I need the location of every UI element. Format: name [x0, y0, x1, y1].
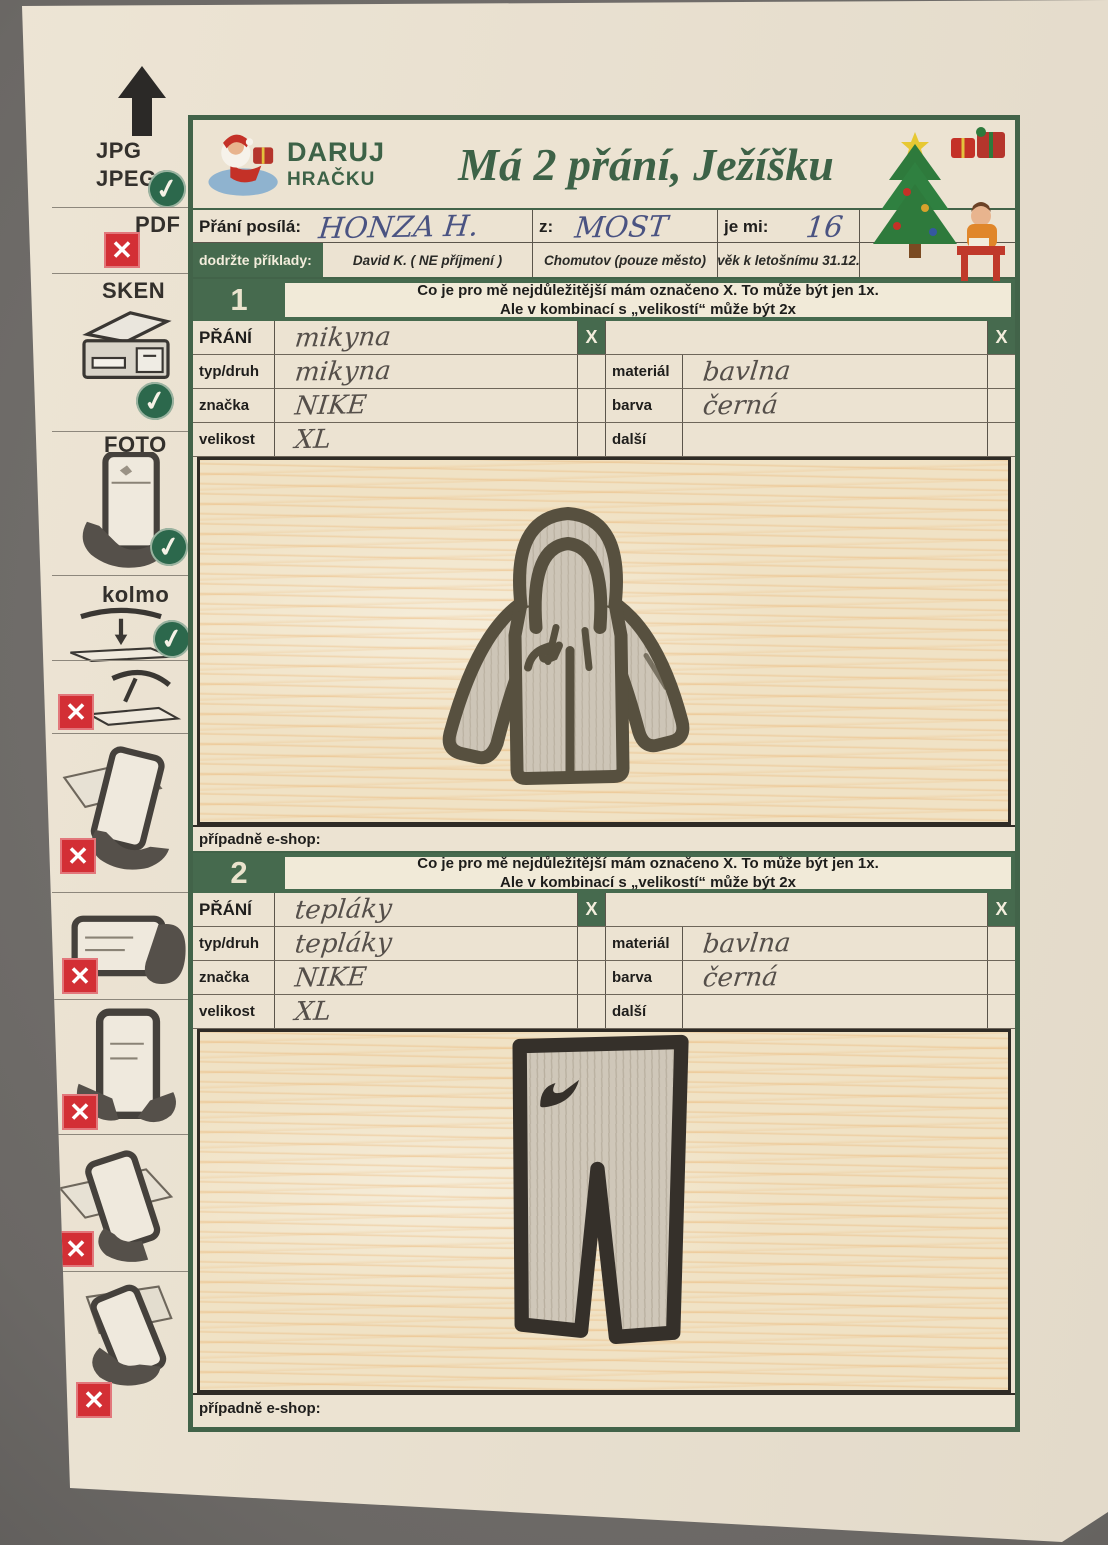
x-checkbox-cell — [578, 927, 606, 960]
other-label: další — [606, 1003, 646, 1020]
type-value: tepláky — [273, 927, 393, 959]
x-column-header: X — [988, 321, 1015, 354]
x-checkbox-cell — [988, 389, 1015, 422]
divider — [52, 575, 190, 576]
brand-value: NIKE — [273, 390, 368, 422]
brand-label: značka — [193, 397, 249, 414]
city-value: MOST — [559, 209, 669, 245]
photo-background: JPG JPEG ✓ PDF ✕ SKEN ✓ FOTO — [0, 0, 1108, 1545]
x-checkbox-cell — [988, 961, 1015, 994]
x-checkbox-cell — [578, 961, 606, 994]
type-value: mikyna — [273, 355, 392, 387]
from-label: z: — [533, 217, 553, 237]
rejected-x-icon: ✕ — [58, 1231, 94, 1267]
logo-line-2: HRAČKU — [287, 170, 397, 189]
arrow-up-icon — [118, 66, 166, 136]
color-value: černá — [681, 390, 779, 422]
x-checkbox-cell — [988, 423, 1015, 456]
eshop-row: případně e-shop: — [193, 825, 1015, 853]
x-column-header: X — [988, 893, 1015, 926]
divider — [52, 892, 190, 893]
table-row: typ/druh mikyna materiál bavlna — [193, 355, 1015, 389]
instructions-line-1: Co je pro mě nejdůležitější mám označeno… — [417, 854, 879, 874]
x-column-header: X — [578, 893, 606, 926]
wish-label: PŘÁNÍ — [193, 328, 252, 348]
phone-above-paper-angled-icon — [68, 1282, 186, 1388]
rejected-x-icon: ✕ — [62, 1094, 98, 1130]
drawing-area-sweatpants — [197, 1029, 1011, 1393]
table-row: typ/druh tepláky materiál bavlna — [193, 927, 1015, 961]
sender-label: Přání posílá: — [193, 217, 301, 237]
eshop-label: případně e-shop: — [193, 831, 321, 848]
daruj-hracku-logo: DARUJ HRAČKU — [287, 139, 397, 189]
x-column-header: X — [578, 321, 606, 354]
material-value: bavlna — [681, 928, 792, 960]
section-2-header: 2 Co je pro mě nejdůležitější mám označe… — [193, 853, 1015, 893]
other-label: další — [606, 431, 646, 448]
rejected-x-icon: ✕ — [58, 694, 94, 730]
instructions-line-2: Ale v kombinací s „velikostí“ může být 2… — [500, 300, 796, 320]
brand-label: značka — [193, 969, 249, 986]
examples-label: dodržte příklady: — [193, 243, 323, 277]
wish-label: PŘÁNÍ — [193, 900, 252, 920]
sweatpants-sketch — [491, 1029, 706, 1363]
paper-sheet: JPG JPEG ✓ PDF ✕ SKEN ✓ FOTO — [0, 0, 1108, 1545]
hoodie-sketch — [418, 468, 718, 818]
divider — [52, 660, 190, 661]
wish-value: tepláky — [273, 893, 393, 925]
x-checkbox-cell — [578, 389, 606, 422]
drawing-area-hoodie — [197, 457, 1011, 825]
table-row: velikost XL další — [193, 423, 1015, 457]
x-checkbox-cell — [578, 423, 606, 456]
sender-name-value: HONZA H. — [303, 208, 480, 245]
format-pdf-label: PDF — [135, 212, 181, 238]
x-checkbox-cell — [988, 927, 1015, 960]
section-instructions: Co je pro mě nejdůležitější mám označeno… — [285, 857, 1011, 889]
section-number: 2 — [193, 853, 285, 893]
table-row: značka NIKE barva černá — [193, 961, 1015, 995]
divider — [52, 1134, 190, 1135]
size-value: XL — [273, 424, 332, 455]
example-name: David K. ( NE příjmení ) — [353, 253, 502, 268]
rejected-x-icon: ✕ — [76, 1382, 112, 1418]
example-city: Chomutov (pouze město) — [544, 253, 706, 268]
color-value: černá — [681, 962, 779, 994]
rejected-x-icon: ✕ — [104, 232, 140, 268]
rejected-x-icon: ✕ — [62, 958, 98, 994]
wish-value: mikyna — [273, 321, 392, 353]
divider — [52, 1271, 190, 1272]
x-checkbox-cell — [988, 995, 1015, 1028]
instructions-line-2: Ale v kombinací s „velikostí“ může být 2… — [500, 873, 796, 893]
santa-illustration — [203, 123, 287, 206]
gifts-illustration — [947, 124, 1011, 171]
divider — [52, 207, 190, 208]
logo-line-1: DARUJ — [287, 139, 397, 166]
type-label: typ/druh — [193, 935, 259, 952]
divider — [52, 733, 190, 734]
size-label: velikost — [193, 1003, 255, 1020]
format-jpg-label: JPG — [96, 138, 142, 164]
size-value: XL — [273, 996, 332, 1027]
material-label: materiál — [606, 935, 670, 952]
color-label: barva — [606, 397, 652, 414]
wish-row: PŘÁNÍ tepláky X X — [193, 893, 1015, 927]
table-row: značka NIKE barva černá — [193, 389, 1015, 423]
type-label: typ/druh — [193, 363, 259, 380]
divider — [52, 999, 190, 1000]
x-checkbox-cell — [578, 995, 606, 1028]
color-label: barva — [606, 969, 652, 986]
eshop-label: případně e-shop: — [193, 1400, 321, 1417]
wish-form: DARUJ HRAČKU Má 2 přání, Ježíšku — [188, 115, 1020, 1432]
age-label: je mi: — [718, 217, 768, 237]
size-label: velikost — [193, 431, 255, 448]
divider — [52, 273, 190, 274]
material-label: materiál — [606, 363, 670, 380]
example-age: věk k letošnímu 31.12. — [717, 253, 860, 268]
x-checkbox-cell — [988, 355, 1015, 388]
section-number: 1 — [193, 279, 285, 321]
format-sken-label: SKEN — [102, 278, 165, 304]
wish-row: PŘÁNÍ mikyna X X — [193, 321, 1015, 355]
x-checkbox-cell — [578, 355, 606, 388]
instructions-line-1: Co je pro mě nejdůležitější mám označeno… — [417, 281, 879, 301]
eshop-row: případně e-shop: — [193, 1393, 1015, 1421]
age-value: 16 — [790, 210, 845, 245]
material-value: bavlna — [681, 356, 792, 388]
rejected-x-icon: ✕ — [60, 838, 96, 874]
table-row: velikost XL další — [193, 995, 1015, 1029]
brand-value: NIKE — [273, 962, 368, 994]
scanner-icon — [72, 302, 180, 386]
